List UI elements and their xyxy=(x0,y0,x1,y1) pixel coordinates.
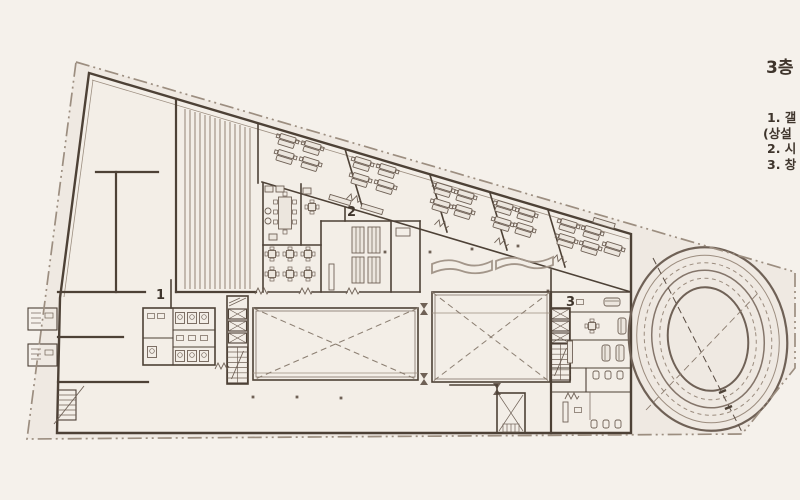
legend-item-2: 2. 시 xyxy=(767,141,796,157)
legend-list: 1. 갤 (상설 2. 시 3. 창 xyxy=(767,110,796,172)
legend-item-3: 3. 창 xyxy=(767,157,796,173)
floor-plan-page: 1 2 3 3층 1. 갤 (상설 2. 시 3. 창 xyxy=(0,0,800,500)
floor-plan-svg: 1 2 3 xyxy=(0,0,800,500)
legend-item-1: 1. 갤 xyxy=(767,110,796,126)
legend-item-1b: (상설 xyxy=(763,126,796,142)
plan-label-1: 1 xyxy=(156,288,165,303)
plan-label-2: 2 xyxy=(347,205,356,220)
floor-title: 3층 xyxy=(766,53,793,78)
plan-label-3: 3 xyxy=(566,295,575,310)
